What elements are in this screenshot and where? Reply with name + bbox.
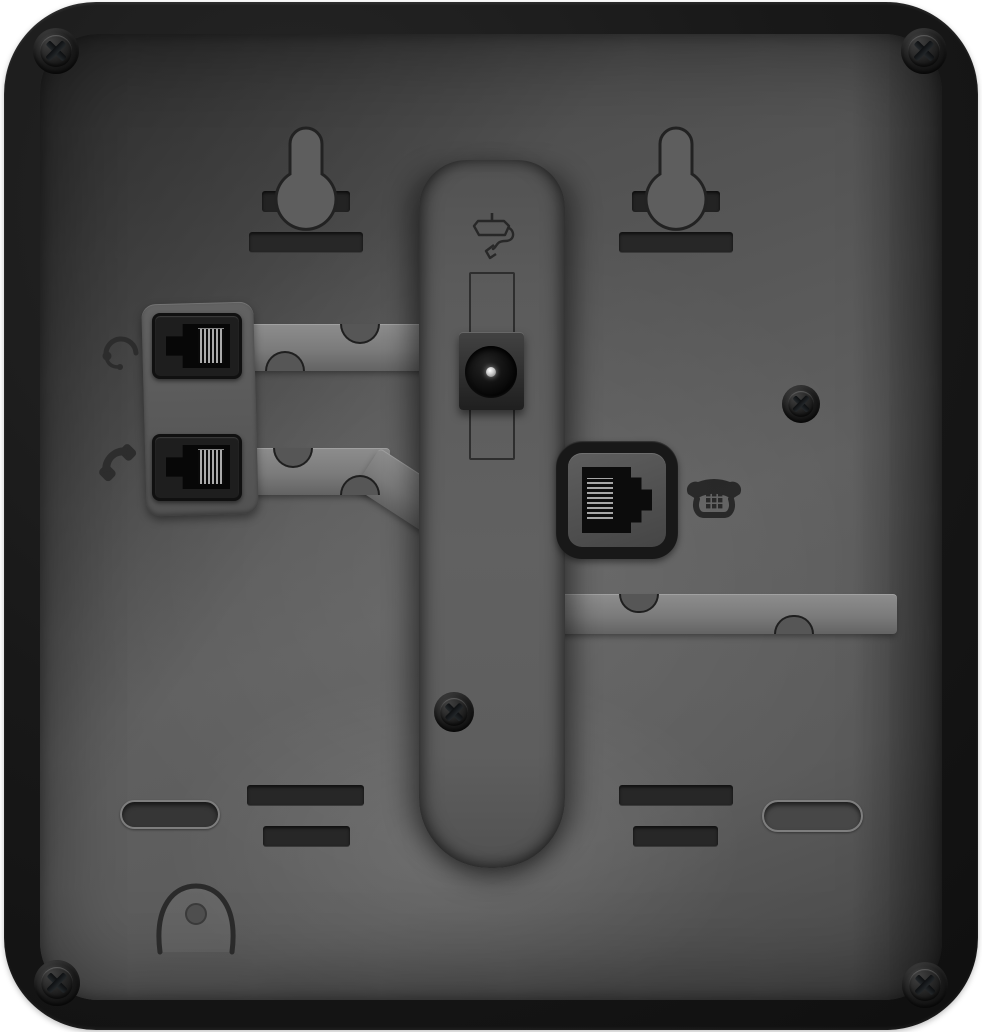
power-adapter-icon [472, 210, 516, 266]
corner-screw-top-left [33, 28, 79, 74]
socket-pins [198, 329, 224, 363]
headset-icon [96, 322, 144, 372]
stand-channel [419, 160, 565, 868]
hanger-hook-recess [150, 872, 246, 956]
wall-mount-keyhole-left [264, 124, 348, 234]
handset-socket-opening [166, 445, 230, 489]
mount-slot [619, 785, 733, 806]
screw-head [40, 35, 72, 67]
foot-recess-right [762, 800, 863, 832]
handset-icon [94, 438, 142, 488]
screw-head [41, 967, 73, 999]
headset-port [152, 313, 242, 379]
dc-center-pin [486, 367, 496, 377]
mount-bar-slot-left [249, 232, 363, 253]
corner-screw-top-right [901, 28, 947, 74]
socket-pins [198, 450, 224, 484]
mount-slot [633, 826, 718, 847]
dc-socket [465, 346, 517, 398]
corner-screw-bottom-right [902, 962, 948, 1008]
screw-head [440, 698, 468, 726]
socket-pins [587, 478, 613, 522]
line-port [556, 441, 678, 559]
stand-channel-screw [434, 692, 474, 732]
handset-port [152, 434, 242, 501]
mount-slot [263, 826, 350, 847]
dc-power-jack [459, 332, 524, 410]
foot-recess-left [120, 800, 220, 829]
side-panel-screw [782, 385, 820, 423]
screw-head [909, 969, 941, 1001]
telephone-icon [682, 478, 746, 520]
cable-channel-right [546, 594, 897, 634]
mount-slot [247, 785, 364, 806]
corner-screw-bottom-left [34, 960, 80, 1006]
phone-rear-photo [0, 0, 982, 1032]
screw-head [788, 391, 815, 418]
mount-bar-slot-right [619, 232, 733, 253]
screw-head [908, 35, 940, 67]
wall-mount-keyhole-right [634, 124, 718, 234]
headset-socket-opening [166, 324, 230, 368]
